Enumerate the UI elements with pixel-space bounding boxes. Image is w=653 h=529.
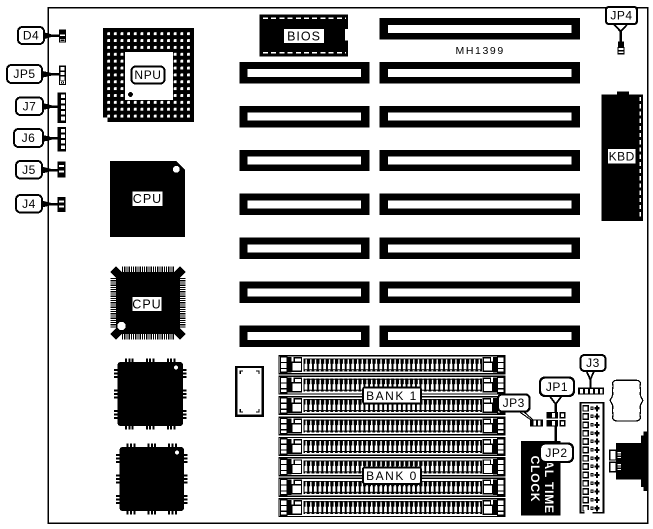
svg-text:KBD: KBD [609, 150, 635, 164]
svg-text:JP4: JP4 [610, 9, 632, 23]
svg-text:CLOCK: CLOCK [528, 456, 542, 503]
svg-text:BANK 0: BANK 0 [366, 469, 418, 483]
svg-text:JP1: JP1 [546, 380, 568, 394]
svg-text:D4: D4 [23, 29, 39, 43]
svg-text:BANK 1: BANK 1 [366, 389, 418, 403]
svg-text:J7: J7 [23, 99, 37, 113]
svg-text:J3: J3 [586, 356, 600, 370]
svg-text:CPU: CPU [132, 297, 161, 311]
svg-text:JP3: JP3 [503, 396, 525, 410]
svg-text:MH1399: MH1399 [456, 45, 505, 57]
svg-text:JP2: JP2 [545, 446, 567, 460]
svg-text:BIOS: BIOS [287, 30, 321, 44]
svg-text:J5: J5 [22, 163, 36, 177]
svg-text:J4: J4 [22, 197, 36, 211]
svg-text:J6: J6 [22, 131, 36, 145]
svg-text:CPU: CPU [133, 192, 162, 206]
svg-text:NPU: NPU [134, 68, 161, 82]
svg-text:JP5: JP5 [13, 67, 35, 81]
